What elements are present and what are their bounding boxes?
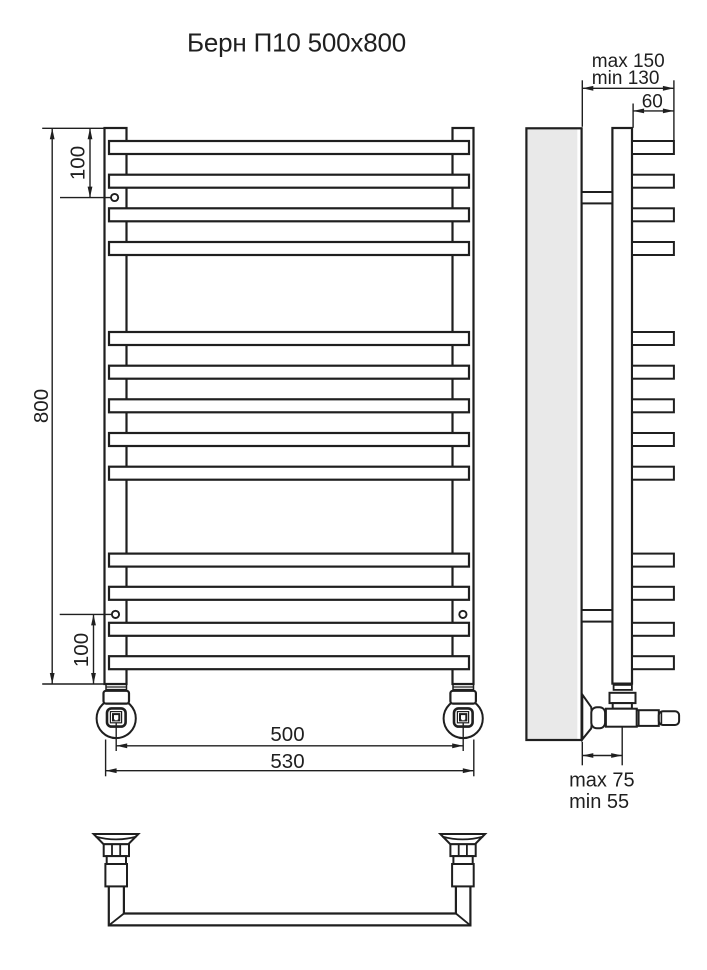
svg-text:max 75: max 75 <box>569 769 635 791</box>
svg-text:100: 100 <box>70 633 93 667</box>
svg-text:Берн П10 500х800: Берн П10 500х800 <box>187 28 406 58</box>
svg-text:800: 800 <box>30 389 53 423</box>
svg-text:100: 100 <box>67 146 90 180</box>
svg-text:530: 530 <box>270 750 304 773</box>
svg-text:500: 500 <box>270 723 304 746</box>
svg-text:min 130: min 130 <box>592 68 660 89</box>
svg-text:60: 60 <box>642 92 663 113</box>
svg-text:min 55: min 55 <box>569 791 629 813</box>
